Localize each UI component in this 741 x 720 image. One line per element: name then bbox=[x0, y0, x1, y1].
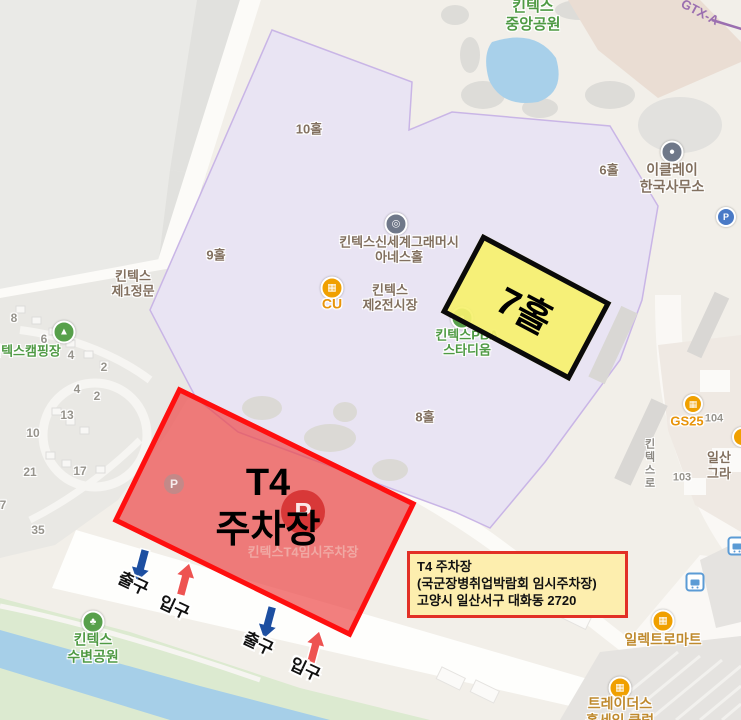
kintex-ro-road-label: 킨텍스로 bbox=[641, 438, 657, 490]
info-line-event: (국군장병취업박람회 임시주차장) bbox=[417, 576, 618, 593]
gate1-label: 킨텍스제1정문 bbox=[111, 269, 154, 300]
base-map bbox=[0, 0, 741, 720]
info-line-title: T4 주차장 bbox=[417, 559, 618, 576]
lot-number: 2 bbox=[101, 360, 108, 374]
hall-10-label: 10홀 bbox=[296, 121, 322, 136]
block-103-label: 103 bbox=[673, 472, 691, 485]
waterside-park-icon[interactable]: ♣ bbox=[82, 611, 105, 634]
hall-6-label: 6홀 bbox=[599, 162, 618, 177]
info-line-address: 고양시 일산서구 대화동 2720 bbox=[417, 593, 618, 610]
map-viewport[interactable]: 킨텍스중앙공원 GTX-A 10홀 9홀 6홀 8홀 킨텍스제1정문 ◎ 킨텍스… bbox=[0, 0, 741, 720]
hall7-highlight-label: 7홀 bbox=[488, 270, 563, 345]
block-104-label: 104 bbox=[705, 413, 723, 426]
hall-9-label: 9홀 bbox=[206, 247, 225, 262]
bus-stop-icon-2[interactable] bbox=[728, 537, 741, 556]
gs25-icon[interactable]: ▦ bbox=[683, 394, 703, 414]
lot-number: 4 bbox=[68, 348, 75, 362]
lot-number: 17 bbox=[73, 464, 86, 478]
traders-label[interactable]: 트레이더스홀세일 클럽 bbox=[586, 695, 654, 720]
cu-store-label[interactable]: CU bbox=[322, 296, 342, 313]
lot-number: 8 bbox=[11, 311, 18, 325]
exhibition2-label[interactable]: 킨텍스제2전시장 bbox=[362, 283, 417, 314]
t4-parking-title: T4주차장 bbox=[216, 460, 321, 554]
lot-number: 4 bbox=[74, 382, 81, 396]
lot-number: 13 bbox=[60, 408, 73, 422]
lot-number: 2 bbox=[94, 389, 101, 403]
lot-number: 7 bbox=[0, 498, 6, 512]
clipped-area-label: 일산그라 bbox=[707, 450, 731, 481]
t4-parking-p-icon-small: P bbox=[164, 474, 184, 494]
shinsegae-anneshall-label[interactable]: 킨텍스신세계그래머시아네스홀 bbox=[339, 235, 459, 266]
parking-icon[interactable]: P bbox=[716, 207, 736, 227]
waterside-park-label[interactable]: 킨텍스수변공원 bbox=[67, 631, 119, 664]
lot-number: 35 bbox=[31, 523, 44, 537]
electromart-icon[interactable]: ▦ bbox=[652, 610, 675, 633]
shinsegae-anneshall-icon[interactable]: ◎ bbox=[385, 213, 408, 236]
iclei-office-label[interactable]: 이클레이한국사무소 bbox=[640, 161, 704, 194]
parking-letter: P bbox=[723, 212, 729, 222]
campground-label[interactable]: 킨텍스캠핑장 bbox=[0, 343, 61, 358]
central-park-label: 킨텍스중앙공원 bbox=[505, 0, 560, 34]
electromart-label[interactable]: 일렉트로마트 bbox=[624, 632, 701, 649]
hall-8-label: 8홀 bbox=[415, 409, 434, 424]
campground-icon[interactable]: ▲ bbox=[53, 321, 76, 344]
t4-parking-info-callout: T4 주차장 (국군장병취업박람회 임시주차장) 고양시 일산서구 대화동 27… bbox=[407, 551, 628, 618]
parking-letter: P bbox=[170, 477, 178, 491]
bus-stop-icon[interactable] bbox=[686, 573, 705, 592]
gs25-label[interactable]: GS25 bbox=[670, 413, 703, 428]
lot-number: 10 bbox=[26, 426, 39, 440]
lot-number: 6 bbox=[41, 332, 48, 346]
lot-number: 21 bbox=[23, 465, 36, 479]
iclei-office-icon[interactable]: ● bbox=[661, 141, 684, 164]
